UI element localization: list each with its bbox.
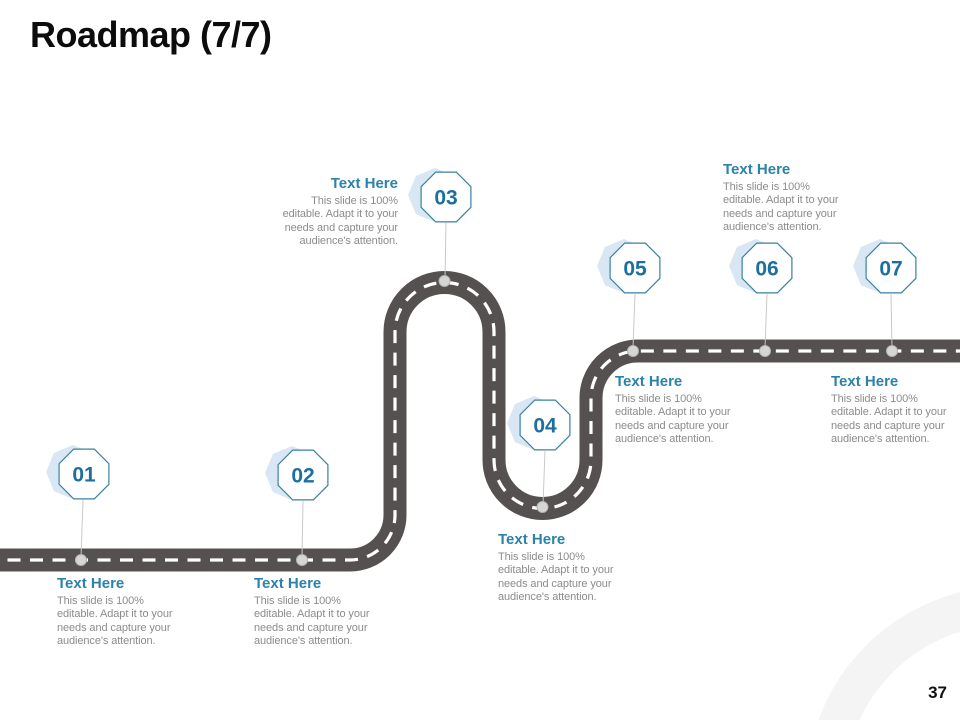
road-dot-01 [76,555,87,566]
road-dot-02 [297,555,308,566]
milestone-number: 07 [879,258,902,281]
milestone-title: Text Here [615,373,765,390]
road-dot-05 [628,346,639,357]
milestone-number: 04 [533,415,557,438]
page-number: 37 [928,683,947,703]
milestone-number: 06 [755,258,778,281]
milestone-title: Text Here [254,575,404,592]
milestone-text-02: Text Here This slide is 100% editable. A… [254,575,404,648]
connector-line-04 [543,451,545,505]
milestone-title: Text Here [248,175,398,192]
milestone-description: This slide is 100% editable. Adapt it to… [723,181,873,234]
milestone-number: 05 [623,258,647,281]
milestone-text-04: Text Here This slide is 100% editable. A… [498,531,648,604]
milestone-number: 02 [291,465,314,488]
milestone-marker-06: 06 [727,236,803,300]
milestone-title: Text Here [723,161,873,178]
milestone-text-05: Text Here This slide is 100% editable. A… [615,373,765,446]
milestone-text-03: Text Here This slide is 100% editable. A… [248,175,398,248]
milestone-number: 01 [72,464,96,487]
milestone-description: This slide is 100% editable. Adapt it to… [254,595,404,648]
road-dot-03 [439,276,450,287]
milestone-title: Text Here [57,575,207,592]
milestone-title: Text Here [831,373,960,390]
milestone-text-01: Text Here This slide is 100% editable. A… [57,575,207,648]
milestone-text-07: Text Here This slide is 100% editable. A… [831,373,960,446]
milestone-description: This slide is 100% editable. Adapt it to… [498,551,648,604]
milestone-marker-04: 04 [505,393,581,457]
milestone-description: This slide is 100% editable. Adapt it to… [248,195,398,248]
road-dot-07 [887,346,898,357]
milestone-title: Text Here [498,531,648,548]
road-dot-04 [537,502,548,513]
road-center-dashes [0,283,960,561]
road-dot-06 [760,346,771,357]
milestone-description: This slide is 100% editable. Adapt it to… [57,595,207,648]
milestone-marker-03: 03 [406,165,482,229]
milestone-number: 03 [434,187,457,210]
slide-canvas: Roadmap (7/7) 01 [0,0,960,720]
milestone-marker-07: 07 [851,236,927,300]
milestone-marker-05: 05 [595,236,671,300]
milestone-description: This slide is 100% editable. Adapt it to… [831,393,960,446]
road-path [0,283,960,561]
milestone-description: This slide is 100% editable. Adapt it to… [615,393,765,446]
milestone-marker-02: 02 [263,443,339,507]
milestone-marker-01: 01 [44,442,120,506]
milestone-text-06: Text Here This slide is 100% editable. A… [723,161,873,234]
